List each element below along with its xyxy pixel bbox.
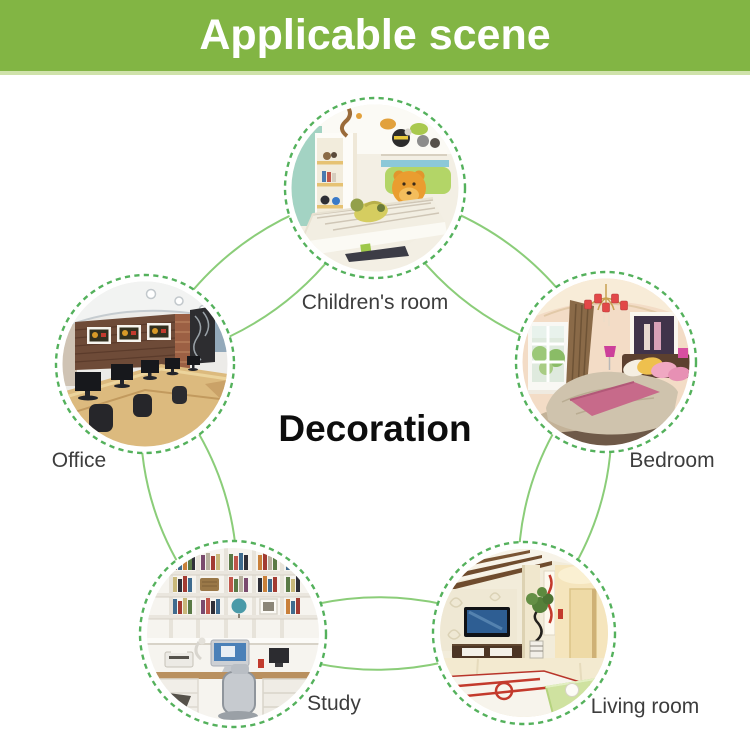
office-circle (56, 275, 234, 453)
living-room-circle (433, 542, 615, 724)
label-office: Office (52, 449, 106, 473)
banner-title: Applicable scene (199, 11, 550, 60)
label-children-room: Children's room (302, 291, 448, 315)
children-room-photo (291, 104, 459, 272)
bedroom-circle (516, 272, 696, 452)
decoration-title: Decoration (278, 408, 471, 450)
children-room-circle (285, 98, 465, 278)
label-bedroom: Bedroom (629, 449, 714, 473)
label-living-room: Living room (591, 695, 700, 719)
scene-diagram (0, 0, 750, 750)
study-circle (140, 541, 326, 727)
office-photo (62, 281, 228, 447)
label-study: Study (307, 692, 361, 716)
banner: Applicable scene (0, 0, 750, 75)
page: Applicable scene Decoration Children's r… (0, 0, 750, 750)
